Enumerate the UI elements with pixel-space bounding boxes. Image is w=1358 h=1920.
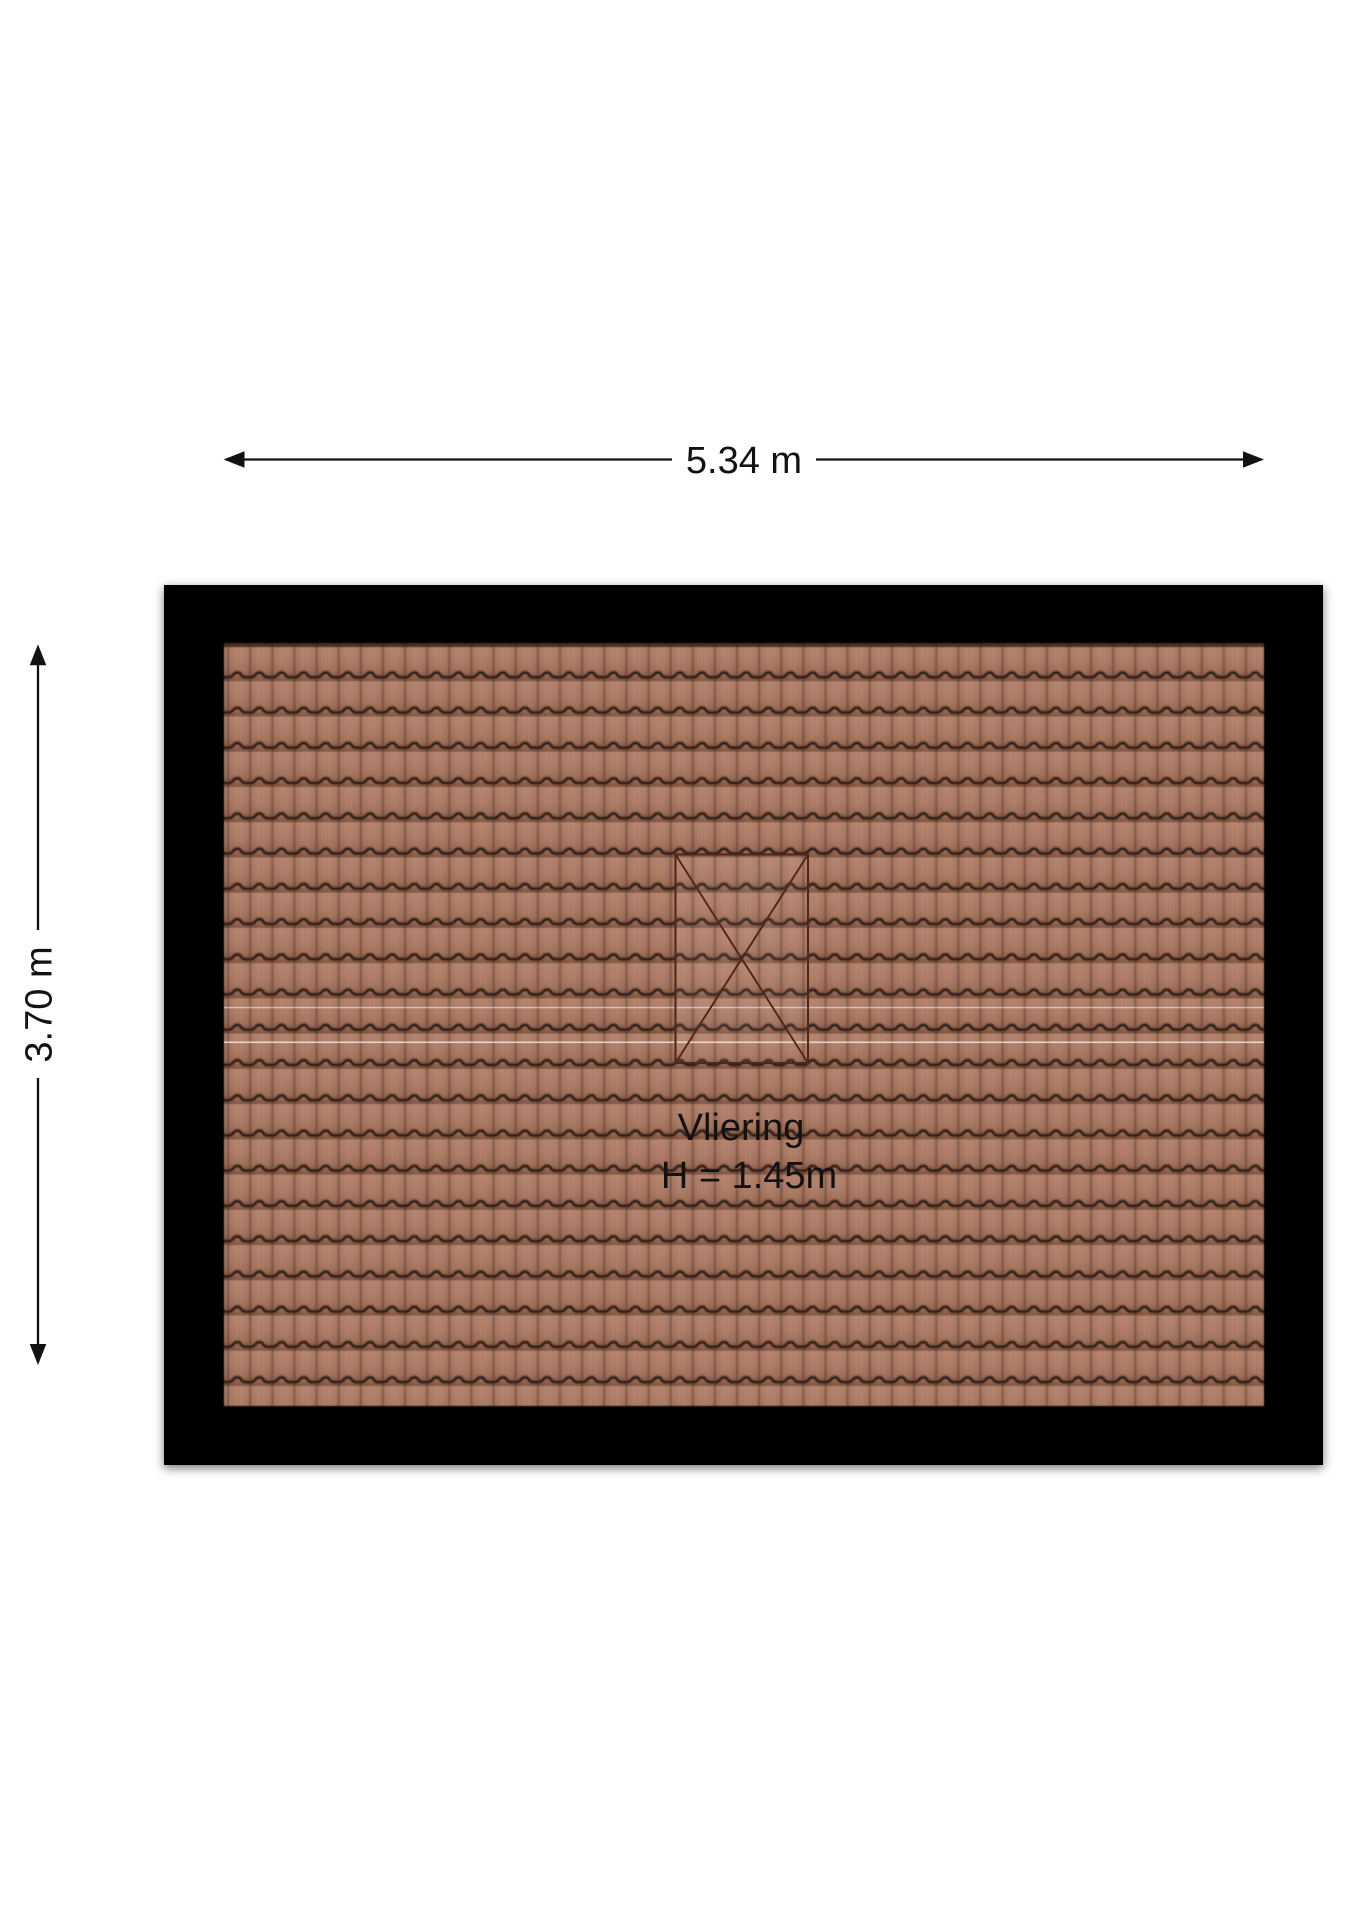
svg-text:Vliering: Vliering	[678, 1107, 805, 1149]
svg-text:H = 1.45m: H = 1.45m	[661, 1155, 837, 1197]
svg-text:3.70 m: 3.70 m	[19, 946, 61, 1062]
svg-text:5.34 m: 5.34 m	[686, 440, 802, 482]
